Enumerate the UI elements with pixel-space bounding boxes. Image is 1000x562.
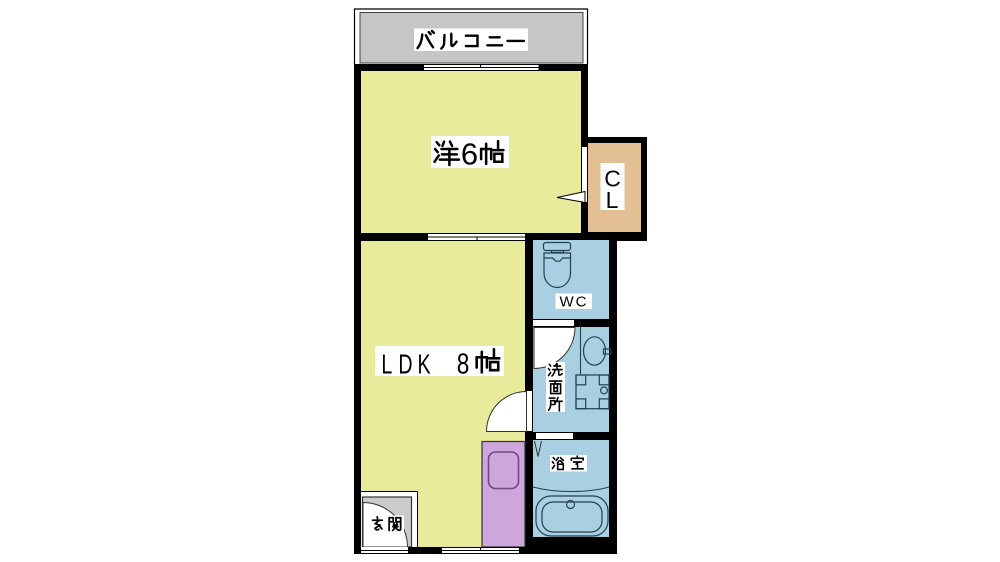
svg-text:D: D <box>398 349 412 380</box>
svg-text:K: K <box>417 349 430 380</box>
svg-text:L: L <box>381 349 392 380</box>
svg-text:L: L <box>606 187 619 213</box>
svg-text:WC: WC <box>560 294 589 311</box>
svg-text:6: 6 <box>461 137 478 172</box>
svg-text:8: 8 <box>457 347 470 380</box>
